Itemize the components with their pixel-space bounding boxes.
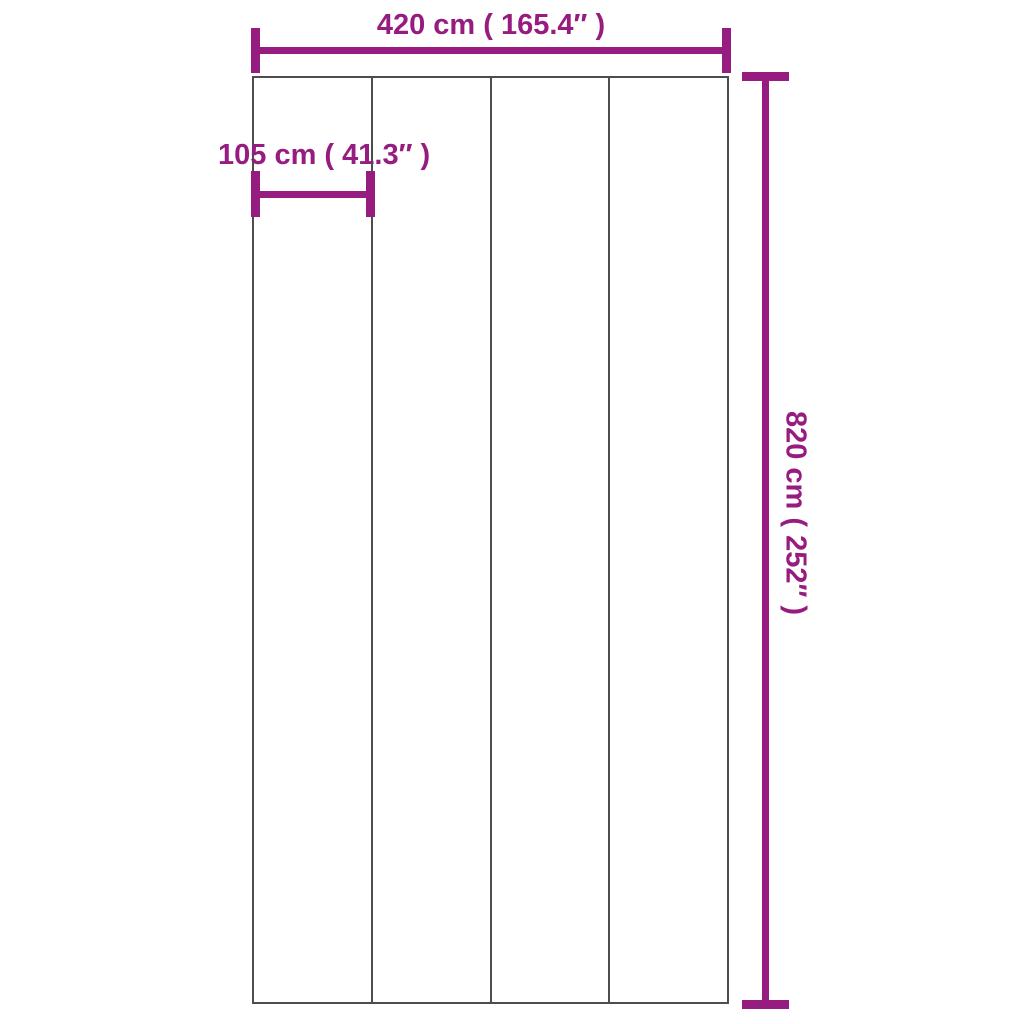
total-width-dimension-cap-right — [722, 28, 731, 73]
total-width-dimension-line — [255, 47, 727, 54]
panel-divider-2 — [490, 78, 492, 1002]
panel-divider-3 — [608, 78, 610, 1002]
section-width-dimension-label: 105 cm ( 41.3″ ) — [218, 141, 430, 170]
total-width-dimension-label: 420 cm ( 165.4″ ) — [255, 11, 727, 40]
total-height-dimension-cap-top — [742, 72, 789, 81]
total-height-dimension-label: 820 cm ( 252″ ) — [781, 411, 810, 615]
section-width-dimension-line — [255, 191, 371, 198]
dimension-diagram: 420 cm ( 165.4″ ) 105 cm ( 41.3″ ) 820 c… — [0, 0, 1024, 1024]
total-width-dimension-cap-left — [251, 28, 260, 73]
section-width-dimension-cap-left — [251, 171, 260, 217]
total-height-dimension-line — [762, 76, 769, 1005]
total-height-dimension-cap-bottom — [742, 1000, 789, 1009]
panel-outline — [252, 76, 729, 1004]
section-width-dimension-cap-right — [366, 171, 375, 217]
